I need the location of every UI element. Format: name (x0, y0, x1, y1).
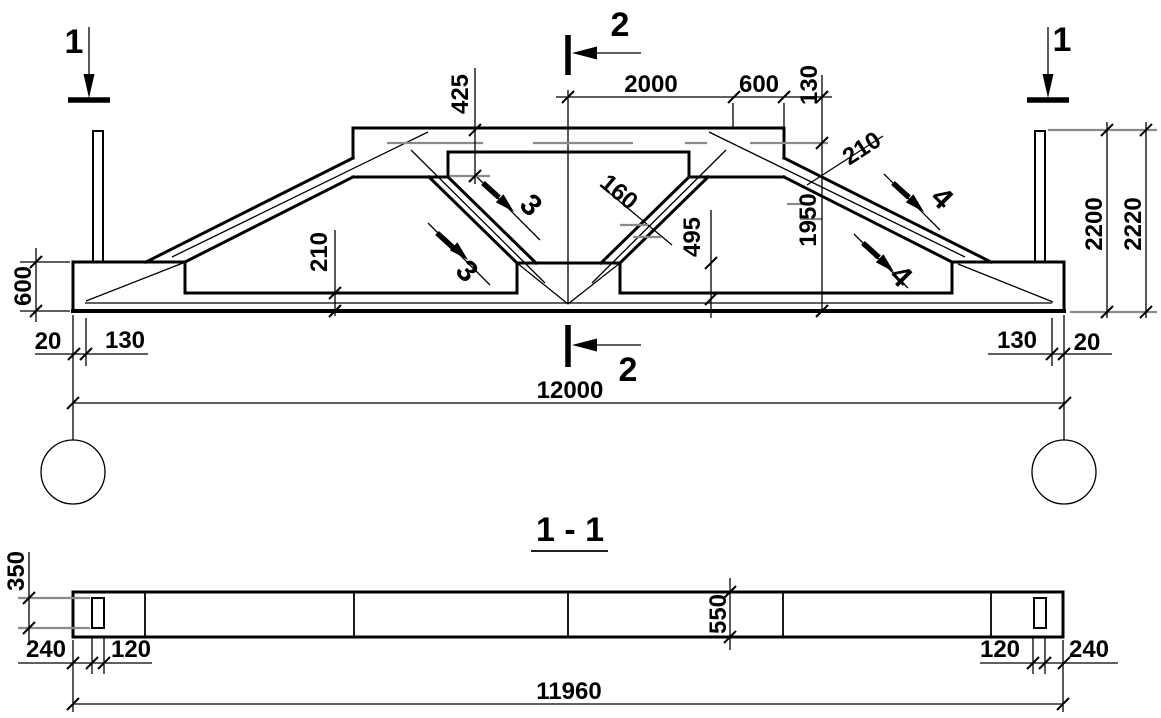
dim-210-chord: 210 (306, 232, 333, 272)
dim-240-left: 240 (26, 636, 66, 663)
beam-plan-dividers (145, 592, 991, 637)
dim-130-left: 130 (105, 327, 145, 354)
dim-2200: 2200 (1081, 197, 1108, 250)
dim-350: 350 (3, 551, 30, 591)
dim-550: 550 (705, 594, 732, 634)
section1-left-label: 1 (65, 23, 84, 61)
cut4-lower-bar (863, 243, 879, 258)
drawing-canvas: 1 1 2 2 2000 600 130 425 210 1950 2200 2… (0, 0, 1161, 718)
cut3-upper-bar (483, 183, 499, 198)
section-title: 1 - 1 (536, 511, 604, 549)
section2-top-arrow-icon (572, 47, 597, 60)
section1-right-label: 1 (1053, 21, 1072, 59)
dim-20-right: 20 (1074, 329, 1101, 356)
dim-120-right: 120 (980, 636, 1020, 663)
grid-bubble-right (1032, 440, 1096, 504)
left-post (93, 131, 103, 262)
dim-120-left: 120 (111, 636, 151, 663)
elevation-view: 1 1 2 2 2000 600 130 425 210 1950 2200 2… (10, 6, 1157, 504)
dim-20-left: 20 (35, 328, 62, 355)
grid-bubble-left (41, 440, 105, 504)
section2-bottom-label: 2 (619, 351, 638, 389)
section2-bottom-arrow-icon (572, 339, 597, 352)
dim-425: 425 (447, 74, 474, 114)
dim-130-top: 130 (796, 65, 823, 105)
reference-lines (387, 130, 1157, 312)
dim-240-right: 240 (1069, 636, 1109, 663)
right-post (1035, 131, 1045, 262)
grid-axis-bubbles (41, 440, 1096, 504)
dim-1950: 1950 (795, 193, 822, 246)
dimension-ticks (30, 91, 1152, 409)
anchor-hole-left (92, 598, 104, 628)
dim-495: 495 (679, 217, 706, 257)
dim-600-top: 600 (739, 71, 779, 98)
cut3-lower-label: 3 (449, 254, 484, 289)
section-1-1-view: 1 - 1 (3, 511, 1118, 712)
section1-right-arrow-icon (1043, 74, 1054, 98)
dim-600-left: 600 (10, 266, 37, 306)
section-labels: 350 550 240 120 120 240 11960 (3, 551, 1109, 705)
section2-top-label: 2 (611, 6, 630, 44)
technical-drawing: 1 1 2 2 2000 600 130 425 210 1950 2200 2… (0, 0, 1161, 718)
dim-12000: 12000 (537, 377, 604, 404)
dim-2000: 2000 (624, 71, 677, 98)
cut3-lower-bar (437, 233, 453, 248)
dim-130-right: 130 (997, 327, 1037, 354)
dim-11960: 11960 (536, 678, 601, 705)
dim-160: 160 (595, 169, 643, 215)
dim-2220: 2220 (1120, 197, 1147, 250)
anchor-hole-right (1034, 598, 1046, 628)
cut4-upper-label: 4 (924, 181, 959, 216)
cut4-upper-bar (893, 183, 909, 198)
dim-210-slope: 210 (838, 126, 886, 170)
section1-left-arrow-icon (84, 74, 95, 98)
